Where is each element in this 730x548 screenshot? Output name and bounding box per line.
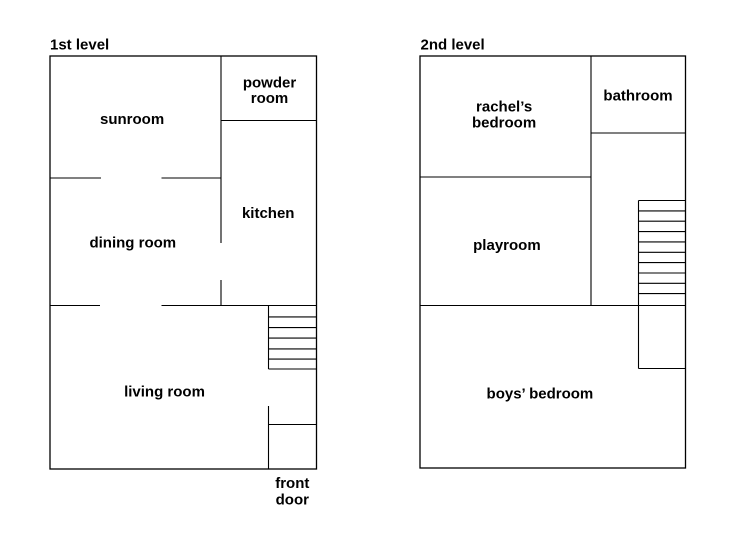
svg-text:front: front [275,475,309,492]
svg-text:powder: powder [243,74,296,91]
svg-text:boys’ bedroom: boys’ bedroom [487,386,594,403]
svg-text:door: door [276,492,309,509]
svg-text:rachel’s: rachel’s [476,98,532,115]
svg-text:kitchen: kitchen [242,205,295,222]
svg-text:living room: living room [124,383,205,400]
svg-text:dining room: dining room [89,235,176,252]
svg-text:room: room [251,90,289,107]
svg-text:2nd level: 2nd level [421,37,485,54]
svg-text:1st level: 1st level [50,37,109,54]
svg-text:bedroom: bedroom [472,115,536,132]
svg-text:sunroom: sunroom [100,111,164,128]
svg-text:bathroom: bathroom [603,88,672,105]
svg-text:playroom: playroom [473,237,541,254]
